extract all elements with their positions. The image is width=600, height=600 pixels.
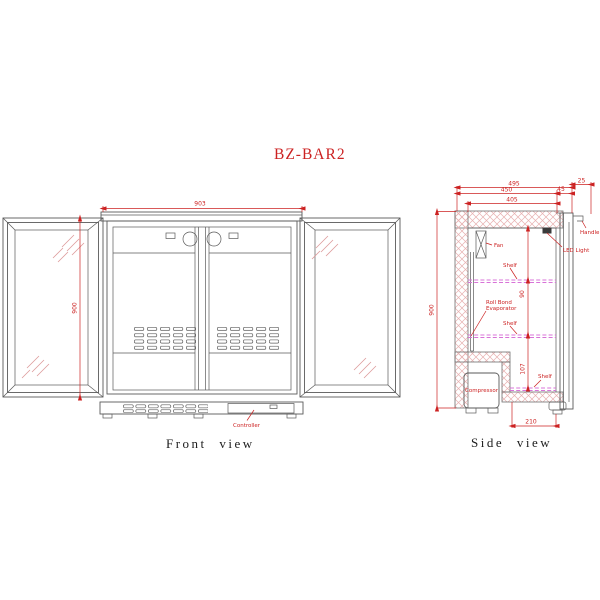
evaporator-label-line2: Evaporator bbox=[486, 306, 517, 312]
dim-107-label: 107 bbox=[520, 363, 527, 375]
counter-top bbox=[101, 212, 302, 221]
led-light-fixture bbox=[543, 228, 551, 233]
drawing-title: BZ-BAR2 bbox=[274, 146, 346, 163]
front-right-door bbox=[300, 218, 400, 397]
dim-90-label: 90 bbox=[519, 290, 526, 298]
dim-45-label: 45 bbox=[557, 186, 565, 193]
side-evaporator-plate bbox=[471, 252, 474, 351]
dim-405-label: 405 bbox=[506, 197, 518, 204]
side-fan bbox=[476, 231, 486, 258]
led-light-label: LED Light bbox=[563, 248, 590, 254]
left-latch bbox=[166, 233, 175, 239]
dim-25-label: 25 bbox=[578, 178, 586, 185]
front-view-caption: Front view bbox=[166, 436, 255, 451]
dim-450-label: 450 bbox=[501, 187, 513, 194]
side-door bbox=[556, 213, 583, 409]
controller-label: Controller bbox=[233, 423, 261, 429]
front-view: 903 900 Controller Front view bbox=[3, 201, 400, 452]
drawing-sheet: 903 900 Controller Front view bbox=[0, 0, 600, 600]
center-mullion bbox=[195, 227, 209, 390]
controller-display bbox=[270, 405, 277, 409]
technical-drawing-canvas: 903 900 Controller Front view bbox=[0, 0, 600, 600]
compressor-label: Compressor bbox=[465, 388, 499, 394]
side-view-caption: Side view bbox=[471, 435, 552, 450]
shelf-label-1: Shelf bbox=[503, 263, 518, 269]
front-width-label: 903 bbox=[194, 201, 206, 208]
shelf-label-3: Shelf bbox=[538, 374, 553, 380]
side-view: Compressor 495 25 450 45 405 900 bbox=[429, 178, 600, 451]
left-vent-grille bbox=[134, 327, 196, 351]
front-kick-plate bbox=[100, 402, 303, 418]
kick-vent-grille bbox=[123, 405, 208, 414]
handle-label: Handle bbox=[580, 230, 600, 236]
side-compressor: Compressor bbox=[464, 373, 499, 408]
glass-reflection-marks bbox=[312, 236, 376, 378]
controller-panel bbox=[228, 404, 294, 414]
right-vent-grille bbox=[217, 327, 279, 351]
front-left-door bbox=[3, 218, 103, 397]
right-latch bbox=[229, 233, 238, 239]
dim-210-label: 210 bbox=[525, 419, 537, 426]
shelf-label-2: Shelf bbox=[503, 321, 518, 327]
fan-label: Fan bbox=[494, 243, 504, 249]
front-cabinet-body bbox=[101, 212, 302, 394]
side-height-label: 900 bbox=[429, 304, 436, 316]
door-handle bbox=[573, 216, 583, 221]
front-height-label: 900 bbox=[72, 302, 79, 314]
front-width-dimension: 903 bbox=[103, 201, 302, 213]
